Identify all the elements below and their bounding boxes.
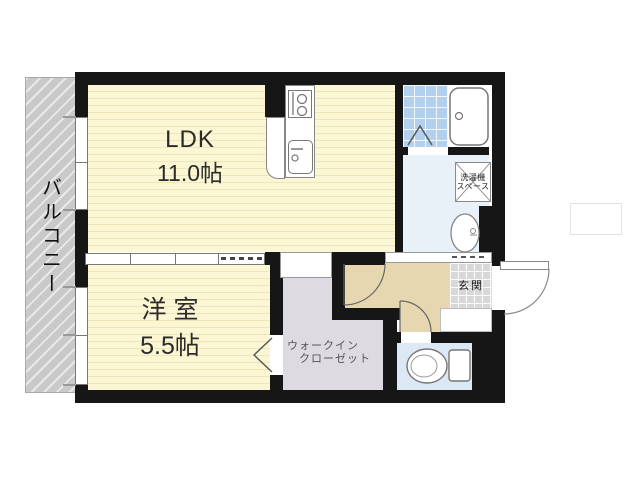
wall-top [75,72,505,85]
sliding-door-dashes [221,257,263,260]
window-ldk-sill [76,162,87,163]
hallway [345,263,452,308]
walk-in-closet-label-line2: クローゼット [284,353,380,366]
bathroom-tub-floor [448,85,489,147]
washing-machine-space-box: 洗濯機 スペース [455,162,491,202]
washroom-door-dashes [452,256,488,258]
laundry-label-line1: 洗濯機 [456,173,489,183]
western-room-label-block: 洋室 5.5帖 [108,290,232,362]
entrance-door-leaf [500,261,549,270]
toilet-room [397,343,472,390]
window-tick-5 [63,384,76,386]
ldk-size: 11.0帖 [128,154,252,188]
wall-toilet-right [472,343,492,390]
wall-closet-right [383,320,397,390]
entrance-door-arc-icon [504,269,549,314]
window-tick-3 [63,286,76,288]
wall-left-seg3 [75,385,88,403]
laundry-label-line2: スペース [456,182,489,192]
wall-left-seg1 [75,72,88,117]
stove-icon [288,90,312,118]
ldk-label: LDK [128,126,252,154]
meter-box [570,203,622,235]
window-tick-1 [63,116,76,118]
entrance-label: 玄関 [450,277,492,293]
walk-in-closet-label-block: ウォークイン クローゼット [284,340,380,366]
window-tick-2 [63,209,76,211]
bathroom-tile-floor [403,85,448,147]
window-western [75,287,88,385]
entrance-step [440,308,492,332]
western-room-size: 5.5帖 [108,326,232,362]
western-room-label: 洋室 [108,290,232,326]
wall-band-a [265,252,280,265]
kitchen-sink-icon [288,140,313,174]
wall-kitchen-stub [265,85,285,117]
walk-in-closet-label-line1: ウォークイン [284,340,380,353]
hallway-extension [400,308,440,332]
window-tick-4 [63,334,76,336]
wall-bath-left [395,85,403,252]
wall-right-lower [492,310,505,403]
bath-door-gap [408,147,448,155]
sliding-door-divider3 [218,253,219,265]
wall-left-seg2 [75,210,88,287]
balcony-label: バルコニー [27,112,73,362]
window-ldk [75,117,88,210]
western-closet-opening [270,335,283,375]
kitchen-counter [266,117,285,179]
wall-bottom [75,390,505,403]
window-western-sill [76,335,87,336]
sliding-door-divider1 [130,253,131,265]
ldk-label-block: LDK 11.0帖 [128,126,252,188]
toilet-door-gap [401,332,431,343]
floor-plan: バルコニー [0,0,640,480]
wall-washroom-jog [479,206,492,256]
wall-right-upper [492,72,505,266]
sliding-door-divider2 [175,253,176,265]
walk-in-closet-room [283,278,332,390]
closet-doorway [280,252,332,278]
wall-hall-bottom [332,308,400,320]
wall-western-right-lower [270,375,283,390]
